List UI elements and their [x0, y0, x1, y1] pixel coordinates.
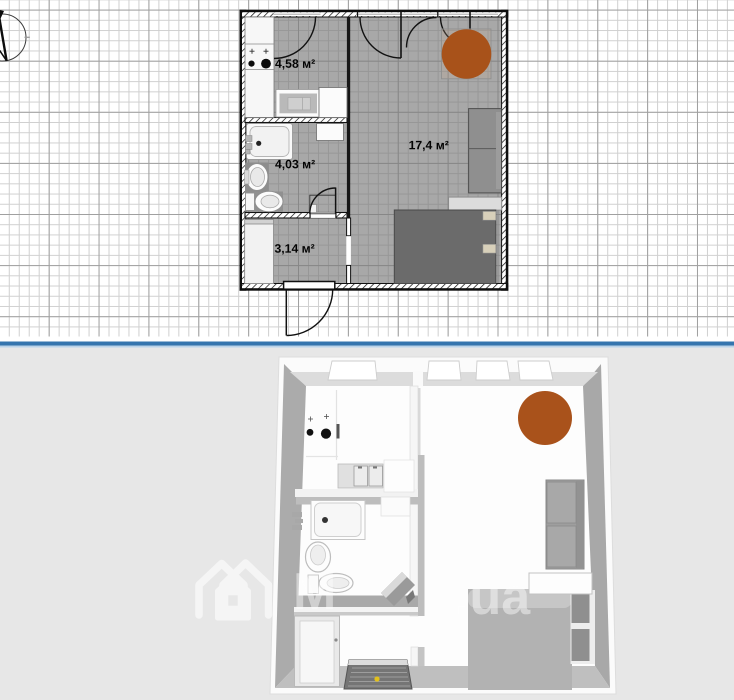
svg-text:17,4 м²: 17,4 м² — [409, 138, 449, 152]
svg-text:4,58 м²: 4,58 м² — [275, 57, 315, 71]
svg-text:М: М — [293, 563, 336, 621]
svg-text:4,03 м²: 4,03 м² — [275, 157, 315, 171]
svg-text:.ua: .ua — [455, 568, 531, 626]
svg-text:3,14 м²: 3,14 м² — [274, 242, 314, 256]
